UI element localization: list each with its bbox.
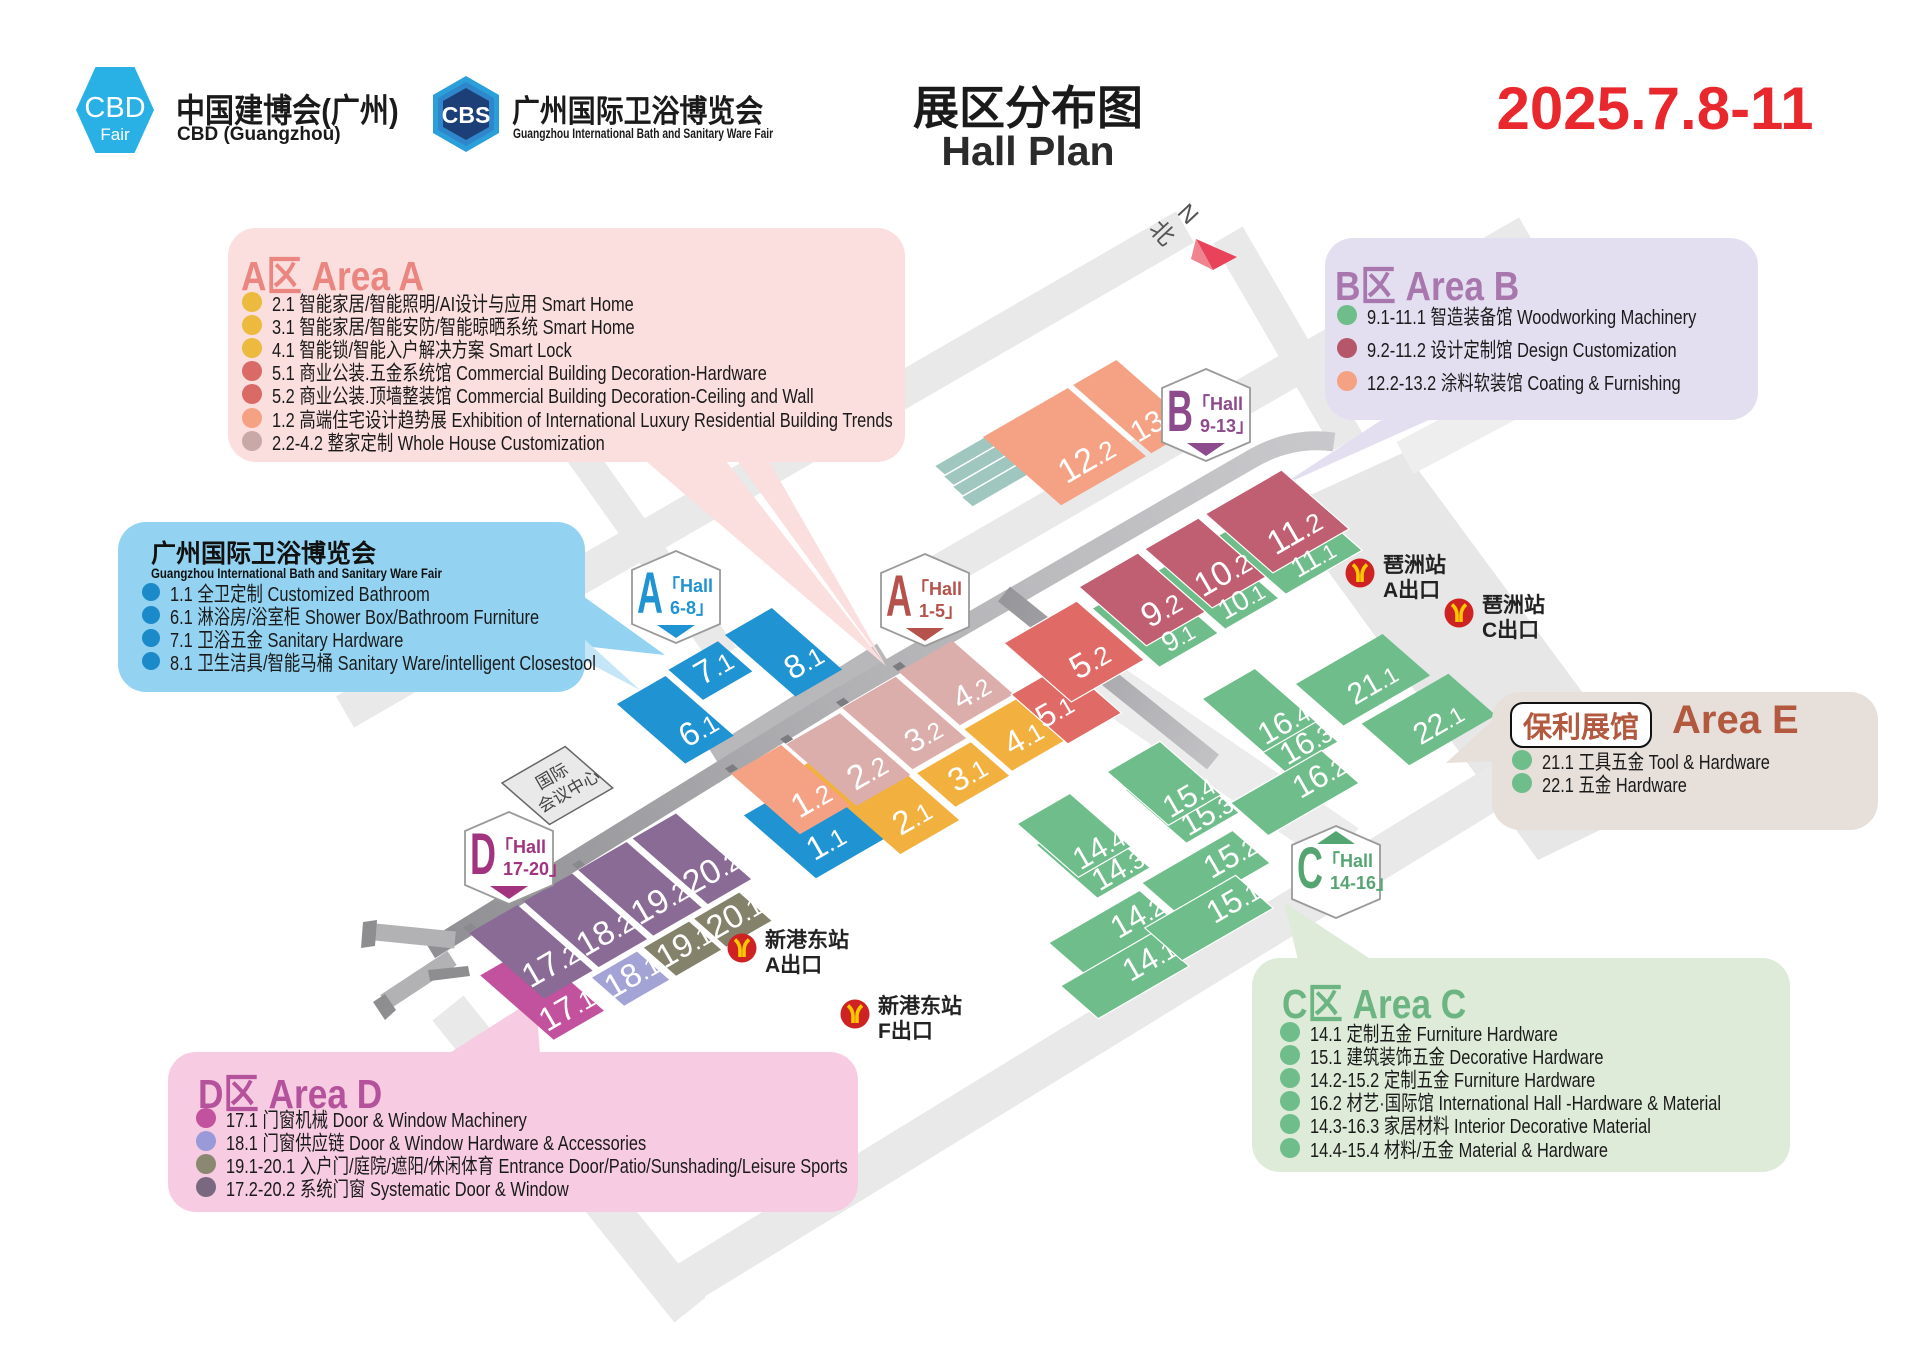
svg-text:「Hall: 「Hall: [911, 578, 962, 599]
svg-text:9-13」: 9-13」: [1200, 416, 1254, 436]
svg-text:Fair: Fair: [100, 125, 130, 144]
svg-text:A出口: A出口: [1383, 579, 1440, 602]
svg-text:F出口: F出口: [878, 1020, 933, 1043]
svg-text:14-16」: 14-16」: [1330, 873, 1394, 893]
svg-text:B: B: [1167, 379, 1193, 444]
svg-text:1-5」: 1-5」: [919, 601, 963, 621]
svg-text:「Hall: 「Hall: [1322, 850, 1373, 871]
svg-text:A: A: [886, 564, 912, 629]
svg-text:A出口: A出口: [765, 954, 822, 977]
svg-text:CBS: CBS: [442, 102, 491, 128]
svg-text:「Hall: 「Hall: [495, 836, 546, 857]
svg-text:C: C: [1297, 836, 1323, 901]
svg-text:CBD: CBD: [84, 92, 145, 124]
svg-text:「Hall: 「Hall: [1192, 393, 1243, 414]
svg-text:17-20」: 17-20」: [503, 859, 567, 879]
svg-text:新港东站: 新港东站: [765, 928, 849, 952]
svg-text:琶洲站: 琶洲站: [1383, 553, 1446, 577]
svg-text:琶洲站: 琶洲站: [1482, 593, 1545, 617]
svg-text:新港东站: 新港东站: [878, 994, 962, 1018]
svg-text:D: D: [470, 822, 496, 887]
svg-text:C出口: C出口: [1482, 619, 1539, 642]
